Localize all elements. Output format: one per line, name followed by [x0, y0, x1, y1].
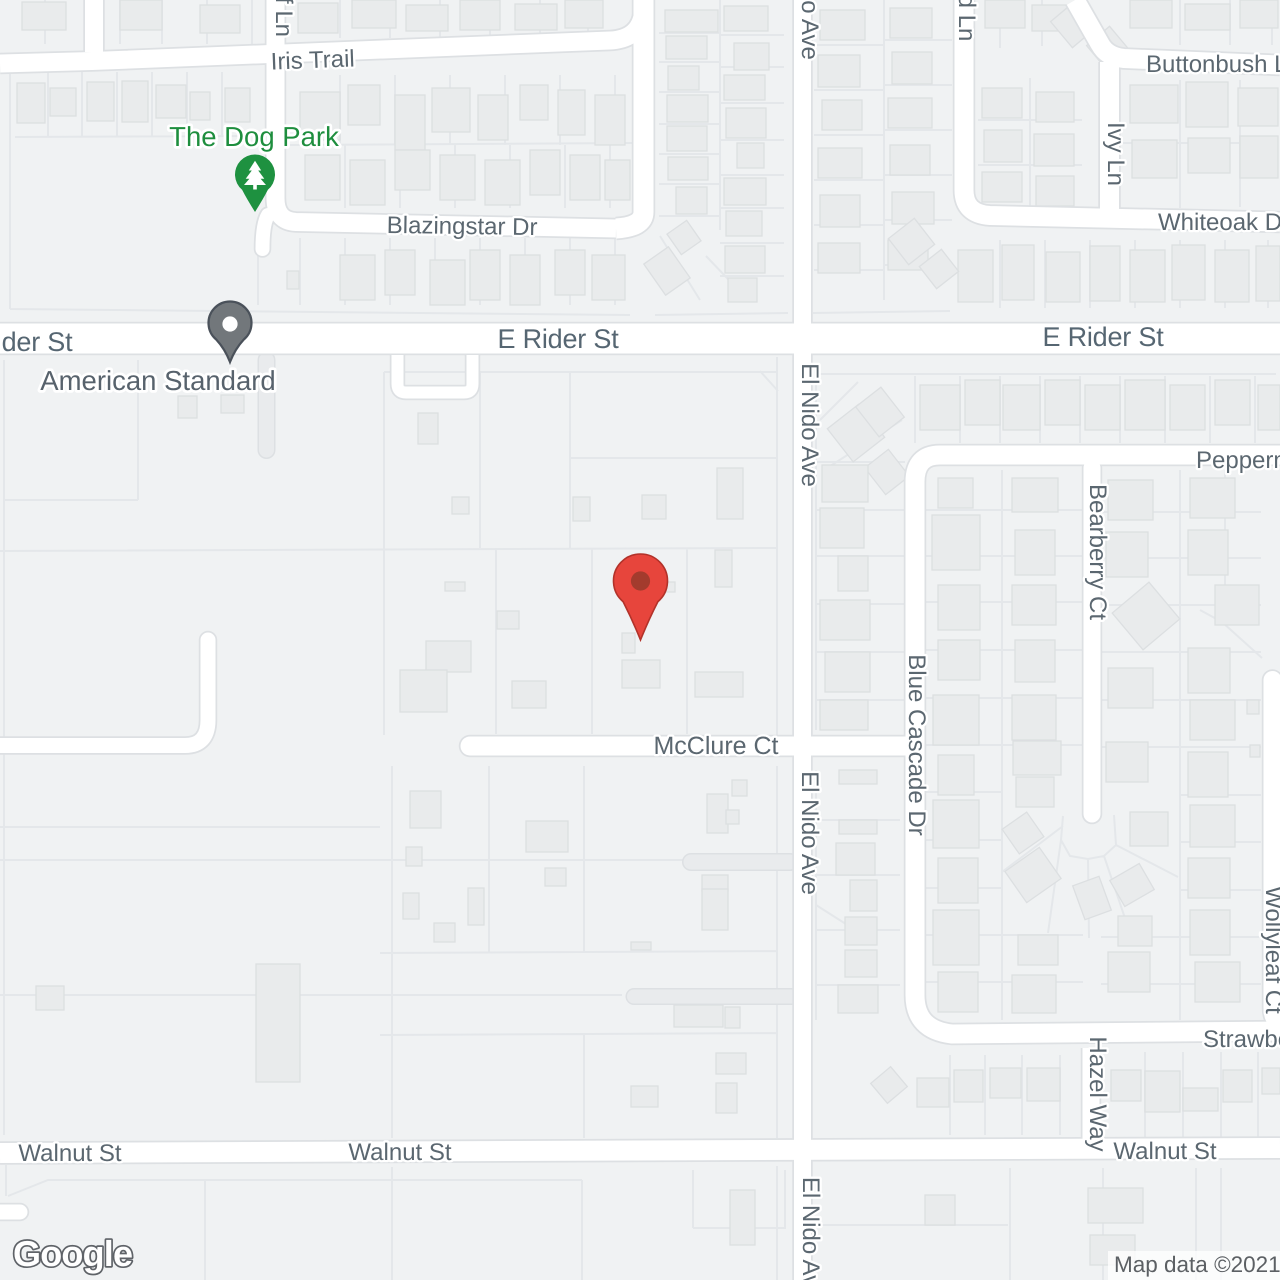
svg-text:Peppermint: Peppermint: [1196, 447, 1280, 474]
svg-text:McClure Ct: McClure Ct: [653, 732, 778, 760]
svg-text:Google: Google: [13, 1233, 132, 1274]
svg-text:d Ln: d Ln: [953, 0, 980, 41]
svg-text:E Rider St: E Rider St: [497, 324, 619, 354]
svg-text:El Nido Ave: El Nido Ave: [796, 363, 823, 487]
svg-text:The Dog Park: The Dog Park: [169, 121, 339, 152]
svg-text:Blue Cascade Dr: Blue Cascade Dr: [903, 654, 930, 835]
svg-text:Wollyleaf Ct: Wollyleaf Ct: [1260, 886, 1280, 1014]
svg-text:Strawberry: Strawberry: [1203, 1026, 1280, 1053]
svg-text:o Ave: o Ave: [796, 0, 823, 60]
svg-text:Walnut St: Walnut St: [18, 1140, 121, 1167]
svg-text:Iris Trail: Iris Trail: [270, 45, 355, 75]
svg-text:Ivy Ln: Ivy Ln: [1102, 122, 1129, 186]
svg-text:Hazel Way: Hazel Way: [1084, 1036, 1111, 1151]
svg-text:El Nido Ave: El Nido Ave: [796, 771, 823, 895]
svg-text:American Standard: American Standard: [40, 365, 275, 396]
svg-text:Buttonbush Ln: Buttonbush Ln: [1146, 51, 1280, 78]
svg-text:E Rider St: E Rider St: [1042, 322, 1164, 352]
svg-text:Whiteoak Dr: Whiteoak Dr: [1158, 209, 1280, 236]
svg-text:Walnut St: Walnut St: [348, 1139, 451, 1166]
svg-text:Map data ©2021: Map data ©2021: [1114, 1252, 1280, 1277]
svg-text:Blazingstar Dr: Blazingstar Dr: [387, 212, 538, 241]
svg-text:El Nido Av: El Nido Av: [797, 1177, 824, 1280]
svg-text:Walnut St: Walnut St: [1113, 1138, 1216, 1165]
svg-text:der St: der St: [2, 327, 74, 357]
svg-text:Bearberry Ct: Bearberry Ct: [1084, 484, 1111, 620]
svg-text:f Ln: f Ln: [270, 0, 297, 37]
